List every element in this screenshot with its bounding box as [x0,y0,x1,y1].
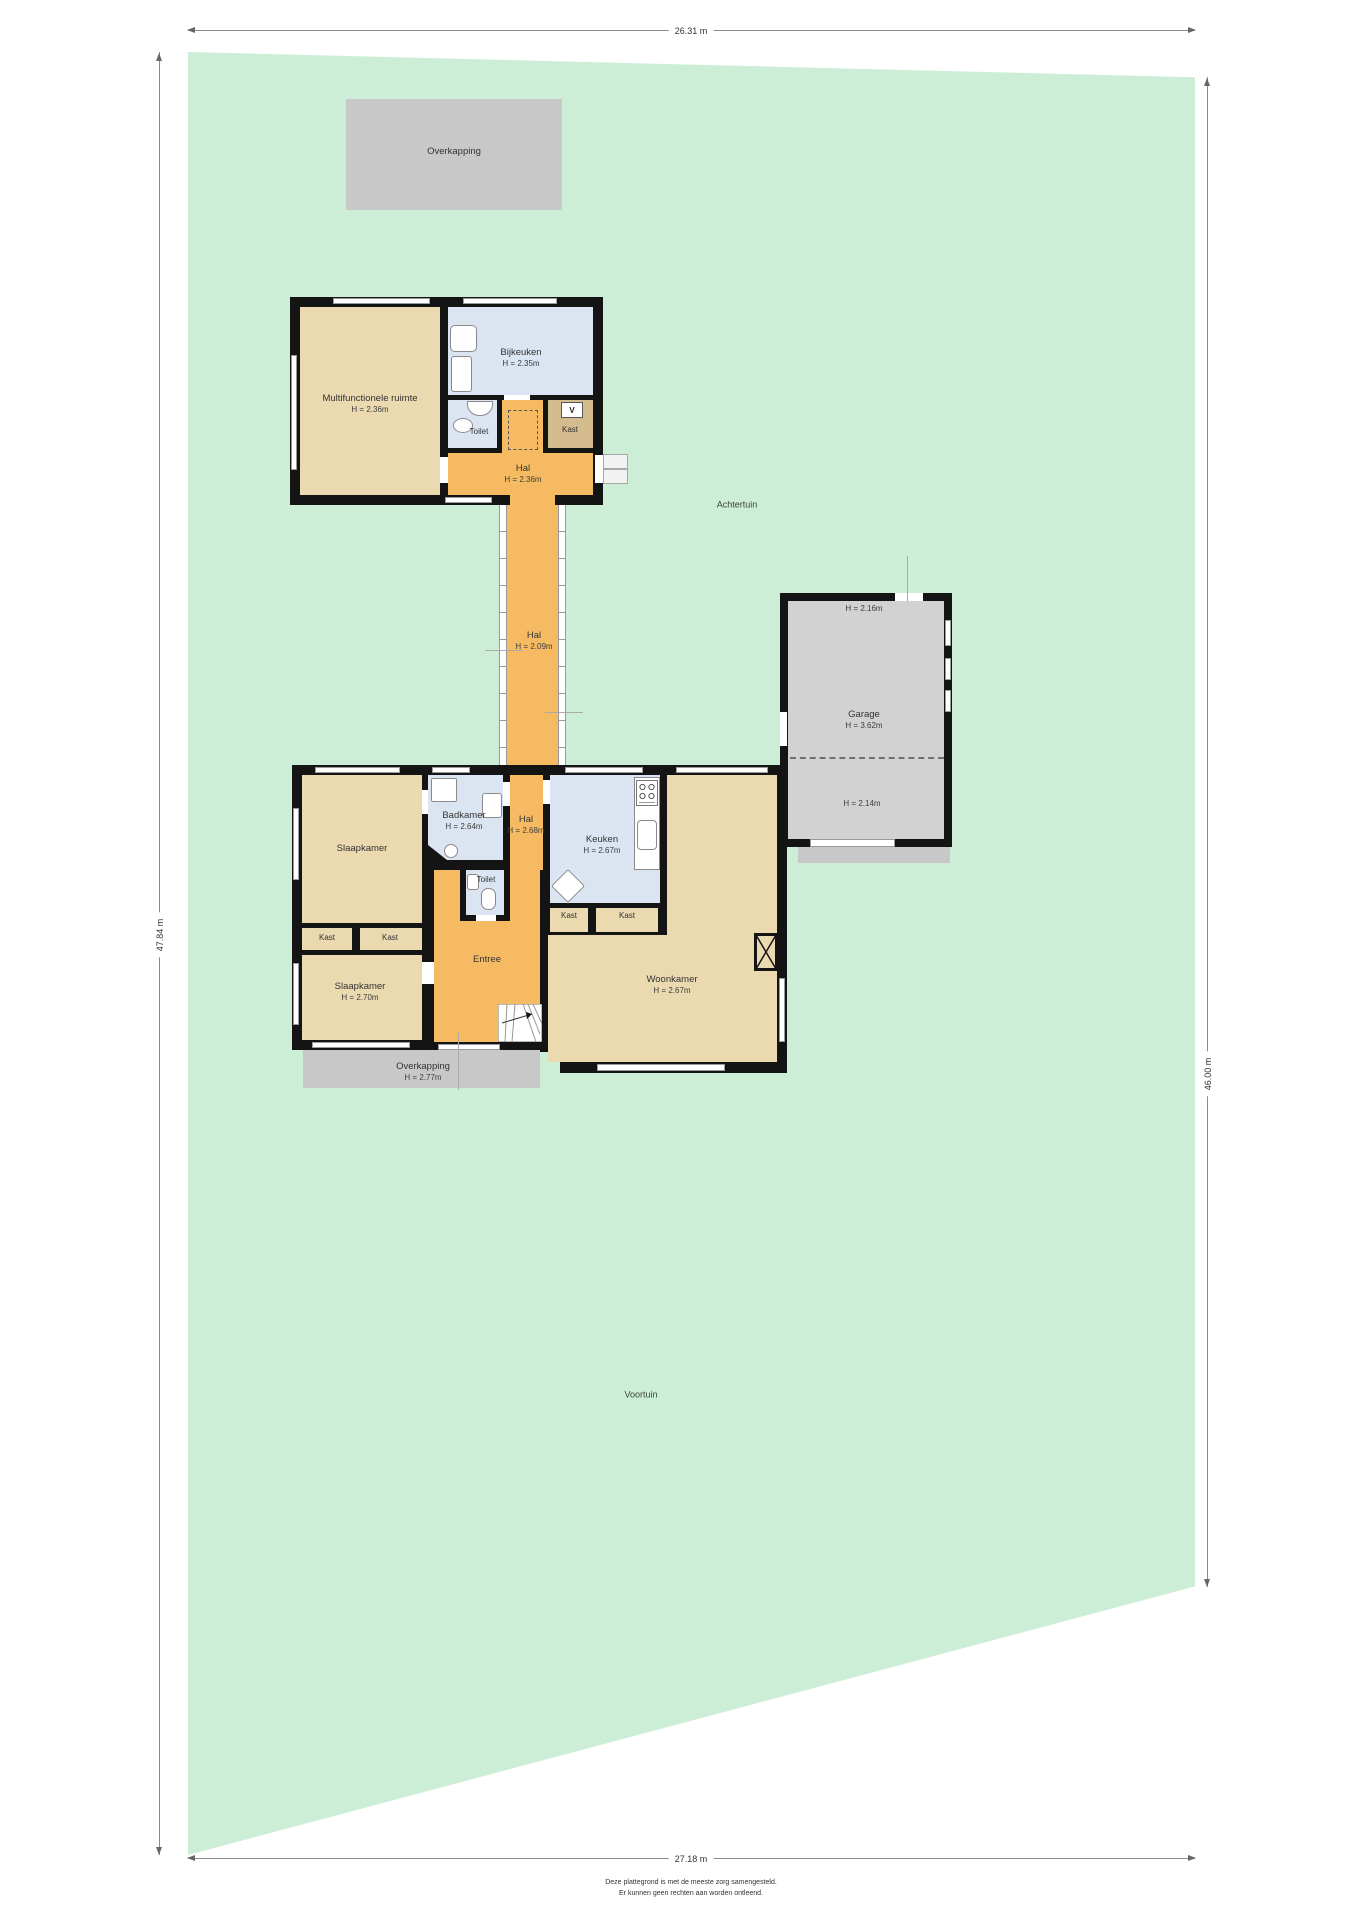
arrow-down-icon [156,1847,162,1855]
window [676,767,768,773]
overkapping-front-label: Overkapping H = 2.77m [396,1061,450,1083]
corridor-glass-wall-left [499,505,507,765]
arrow-left-icon [187,27,195,33]
door-opening [422,962,434,984]
corridor-glass-wall-right [558,505,566,765]
door-opening [595,455,603,483]
outdoor-step [603,454,628,469]
disclaimer-line-1: Deze plattegrond is met de meeste zorg s… [605,1878,777,1889]
garage-split-line [790,757,944,759]
room-label-hal-lower: Hal H = 2.68m [507,814,544,836]
arrow-left-icon [187,1855,195,1861]
room-label-slaapkamer-1: Slaapkamer [337,843,388,855]
garage-bottom-height-label: H = 2.14m [843,799,880,809]
window [333,298,430,304]
toilet-icon [481,888,496,910]
arrow-up-icon [1204,78,1210,86]
room-label-corridor: Hal H = 2.09m [515,630,552,652]
room-label-kast-3: Kast [561,911,577,921]
arrow-right-icon [1188,1855,1196,1861]
room-woonkamer [667,775,777,935]
basin-icon [444,844,458,858]
measure-tick [545,712,583,713]
door-opening [503,782,510,806]
stove-icon [636,780,658,811]
window [597,1064,725,1071]
garage-front-door [810,839,895,847]
kitchen-sink-icon [637,820,657,850]
room-label-kast-2: Kast [382,933,398,943]
room-label-kast-upper: Kast [562,425,578,435]
window [291,355,297,470]
garage-top-height-label: H = 2.16m [845,604,882,614]
room-label-multifunctionele-ruimte: Multifunctionele ruimte H = 2.36m [322,393,417,415]
window [463,298,557,304]
dimension-top-label: 26.31 m [669,25,714,37]
outdoor-step [603,469,628,484]
sink-icon [451,356,472,392]
dimension-bottom-label: 27.18 m [669,1853,714,1865]
dimension-left-label: 47.84 m [154,913,166,958]
room-label-kast-1: Kast [319,933,335,943]
stairs-icon [498,1004,542,1047]
room-label-hal-upper: Hal H = 2.36m [504,463,541,485]
window [945,658,951,680]
room-label-entree: Entree [473,954,501,966]
room-label-bijkeuken: Bijkeuken H = 2.35m [500,347,541,369]
room-label-garage: Garage H = 3.62m [845,709,882,731]
door-opening [543,780,550,804]
garden-back-label: Achtertuin [717,499,758,510]
window [312,1042,410,1048]
door-opening [504,395,530,400]
corridor-opening-upper [510,495,555,505]
door-opening [422,790,428,814]
dimension-right-label: 46.00 m [1202,1052,1214,1097]
window [293,963,299,1025]
room-label-keuken: Keuken H = 2.67m [583,834,620,856]
fireplace-icon [754,933,778,976]
dimension-line-right [1207,77,1208,1587]
arrow-down-icon [1204,1579,1210,1587]
overkapping-top-label: Overkapping [427,146,481,158]
arrow-right-icon [1188,27,1196,33]
window [779,978,785,1042]
door-opening [440,457,448,483]
window [565,767,643,773]
disclaimer: Deze plattegrond is met de meeste zorg s… [605,1878,777,1899]
window [445,497,492,503]
room-label-toilet-upper: Toilet [470,427,489,437]
garden-front-label: Voortuin [624,1389,657,1400]
arrow-up-icon [156,53,162,61]
measure-tick [458,1033,459,1090]
shower-icon [431,778,457,802]
washer-icon [450,325,477,352]
window [315,767,400,773]
floorplan-canvas: 26.31 m 27.18 m 47.84 m 46.00 m Overkapp… [0,0,1358,1920]
window [945,690,951,712]
garage-door-opening [895,593,923,601]
garage-apron [798,847,950,863]
room-label-badkamer: Badkamer H = 2.64m [442,810,485,832]
window [945,620,951,646]
room-label-woonkamer: Woonkamer H = 2.67m [646,974,697,996]
disclaimer-line-2: Er kunnen geen rechten aan worden ontlee… [605,1889,777,1900]
room-label-toilet-lower: Toilet [477,875,496,885]
room-label-kast-4: Kast [619,911,635,921]
boundary-line [907,556,908,601]
door-opening [476,915,496,921]
loft-hatch-outline [508,410,538,450]
measure-tick [485,650,523,651]
garage-side-door [780,712,787,746]
ventilation-icon: V [561,402,583,418]
room-woonkamer [548,935,777,1062]
window [293,808,299,880]
room-label-slaapkamer-2: Slaapkamer H = 2.70m [335,981,386,1003]
window [432,767,470,773]
